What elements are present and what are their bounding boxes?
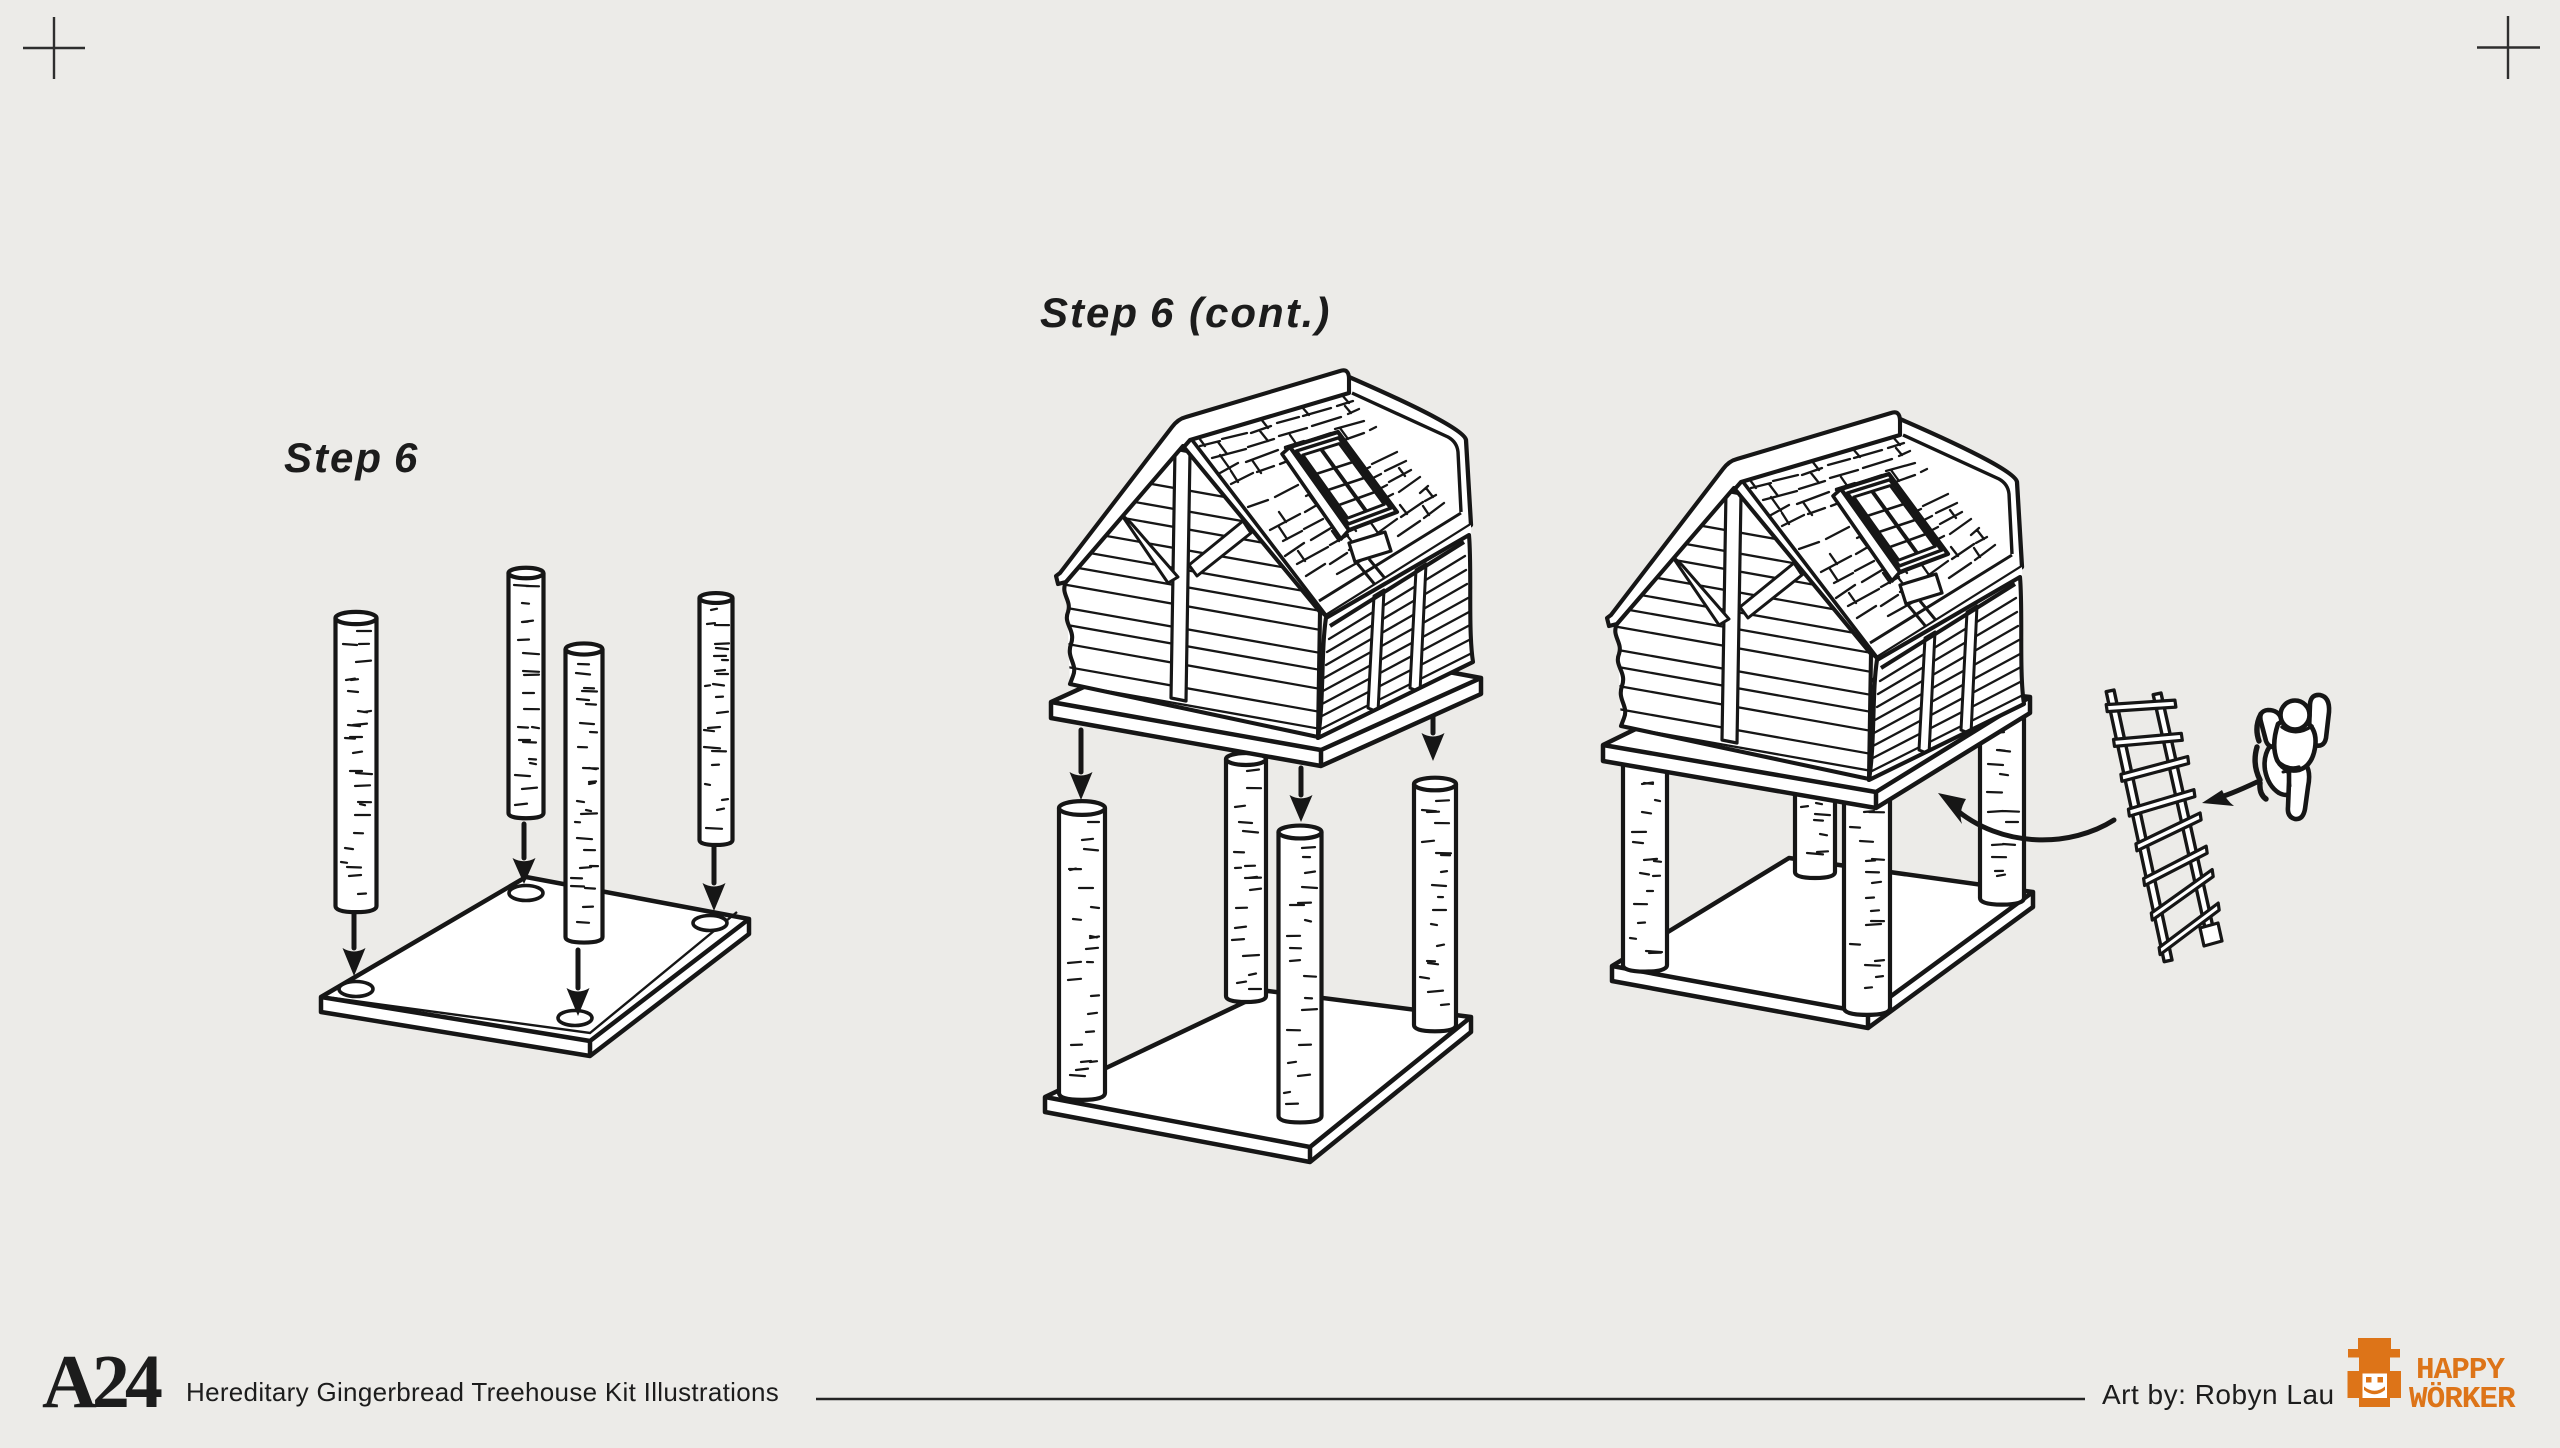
- svg-text:A24: A24: [42, 1340, 162, 1424]
- svg-text:Step6 (cont.): Step6 (cont.): [1040, 289, 1331, 336]
- svg-text:Step6: Step6: [284, 434, 419, 481]
- svg-text:WÖRKER: WÖRKER: [2409, 1381, 2516, 1417]
- svg-text:Art by: Robyn Lau: Art by: Robyn Lau: [2102, 1379, 2335, 1410]
- svg-text:Hereditary Gingerbread Treehou: Hereditary Gingerbread Treehouse Kit Ill…: [186, 1377, 779, 1407]
